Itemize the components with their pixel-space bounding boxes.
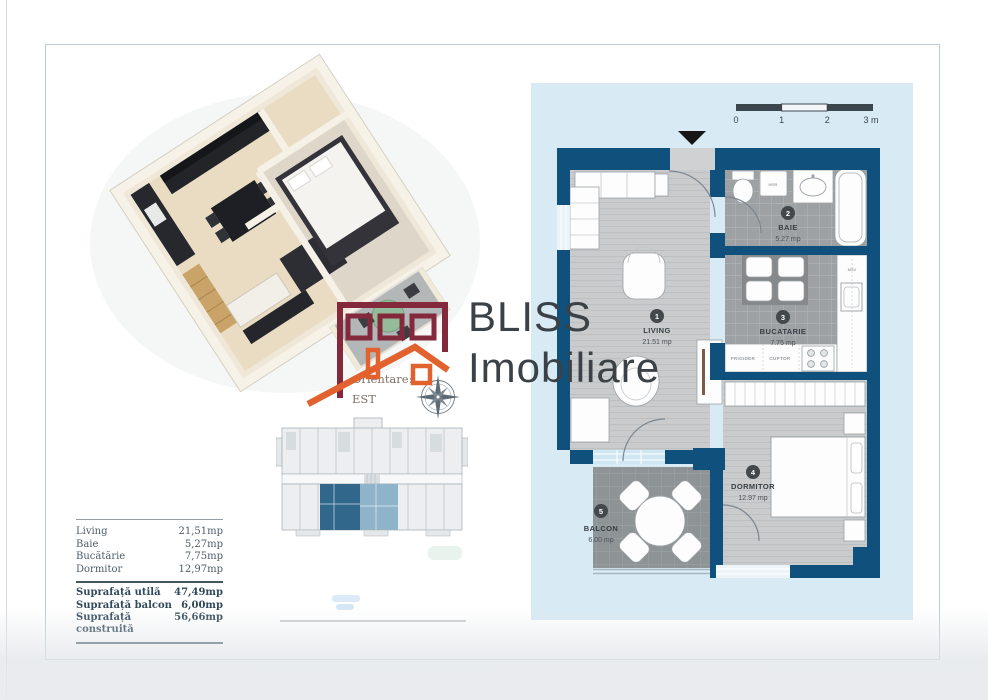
brand-name-top: BLISS (468, 296, 660, 338)
svg-text:0: 0 (733, 115, 738, 125)
row-value: 7,75mp (185, 551, 223, 564)
table-row: Living 21,51mp (76, 526, 223, 539)
svg-text:BAIE: BAIE (778, 223, 798, 232)
building-keyplan (276, 412, 468, 538)
row-label: Bucătărie (76, 551, 125, 564)
table-rule (76, 519, 223, 520)
total-label: Suprafață construită (76, 612, 174, 637)
table-rule (76, 581, 223, 583)
table-row: Baie 5,27mp (76, 539, 223, 552)
svg-text:12.97 mp: 12.97 mp (738, 495, 767, 502)
table-total-row: Suprafață construită 56,66mp (76, 612, 223, 637)
balcony-railing (593, 570, 710, 574)
scale-bar: 0 1 2 3 m (733, 104, 878, 125)
table-total-row: Suprafață utilă 47,49mp (76, 587, 223, 599)
brand-wordmark: BLISS Imobiliare (468, 296, 660, 389)
row-value: 12,97mp (178, 564, 223, 577)
total-value: 6,00mp (181, 600, 223, 612)
svg-text:2: 2 (786, 209, 790, 218)
nightstand (844, 520, 865, 541)
row-label: Living (76, 526, 108, 539)
row-value: 21,51mp (178, 526, 223, 539)
total-label: Suprafață utilă (76, 587, 161, 599)
table-row: Dormitor 12,97mp (76, 564, 223, 577)
page-edge-line (6, 0, 7, 700)
svg-text:5.27 mp: 5.27 mp (775, 236, 800, 243)
svg-text:3 m: 3 m (863, 115, 878, 125)
watermark-smudge (336, 604, 354, 610)
wardrobe-left (570, 187, 599, 249)
total-value: 56,66mp (174, 612, 223, 637)
row-label: Dormitor (76, 564, 122, 577)
pillow (851, 483, 862, 513)
watermark-smudge (332, 595, 360, 602)
window-left (557, 205, 570, 250)
flyer-page: 0 1 2 3 m (0, 0, 988, 700)
total-value: 47,49mp (174, 587, 223, 599)
highlighted-unit-dark (320, 484, 360, 530)
hob (802, 346, 834, 371)
bedroom-window (716, 565, 790, 578)
washer-label: MSR (769, 182, 778, 187)
nightstand (844, 413, 865, 434)
watermark-smudge (428, 546, 462, 560)
toilet-icon (733, 179, 753, 203)
svg-text:BALCON: BALCON (584, 524, 618, 533)
pillow (851, 443, 862, 473)
area-table: Living 21,51mp Baie 5,27mp Bucătărie 7,7… (76, 519, 223, 644)
balcony-door-glass (593, 450, 665, 464)
tv-screen (702, 349, 705, 395)
armchair (623, 253, 665, 299)
dishwasher-label: MSV (848, 267, 857, 272)
row-value: 5,27mp (185, 539, 223, 552)
fridge-label: FRIGIDER (731, 356, 756, 361)
svg-text:1: 1 (779, 115, 784, 125)
oven-label: CUPTOR (769, 356, 790, 361)
svg-text:2: 2 (825, 115, 830, 125)
divider-line (280, 620, 466, 622)
total-label: Suprafață balcon (76, 600, 172, 612)
brand-name-bottom: Imobiliare (468, 347, 660, 389)
svg-text:DORMITOR: DORMITOR (731, 482, 775, 491)
desk (571, 398, 609, 442)
svg-text:BUCATARIE: BUCATARIE (760, 327, 807, 336)
svg-text:6.00 mp: 6.00 mp (588, 537, 613, 544)
table-row: Bucătărie 7,75mp (76, 551, 223, 564)
svg-text:5: 5 (599, 507, 603, 516)
svg-text:3: 3 (781, 313, 785, 322)
bliss-house-icon (308, 286, 458, 414)
entrance-arrow-icon (678, 131, 706, 145)
row-label: Baie (76, 539, 98, 552)
table-total-row: Suprafață balcon 6,00mp (76, 600, 223, 612)
table-rule (76, 642, 223, 644)
svg-text:7.75 mp: 7.75 mp (770, 340, 795, 347)
highlighted-unit-light (360, 484, 398, 530)
bathtub (835, 169, 866, 246)
